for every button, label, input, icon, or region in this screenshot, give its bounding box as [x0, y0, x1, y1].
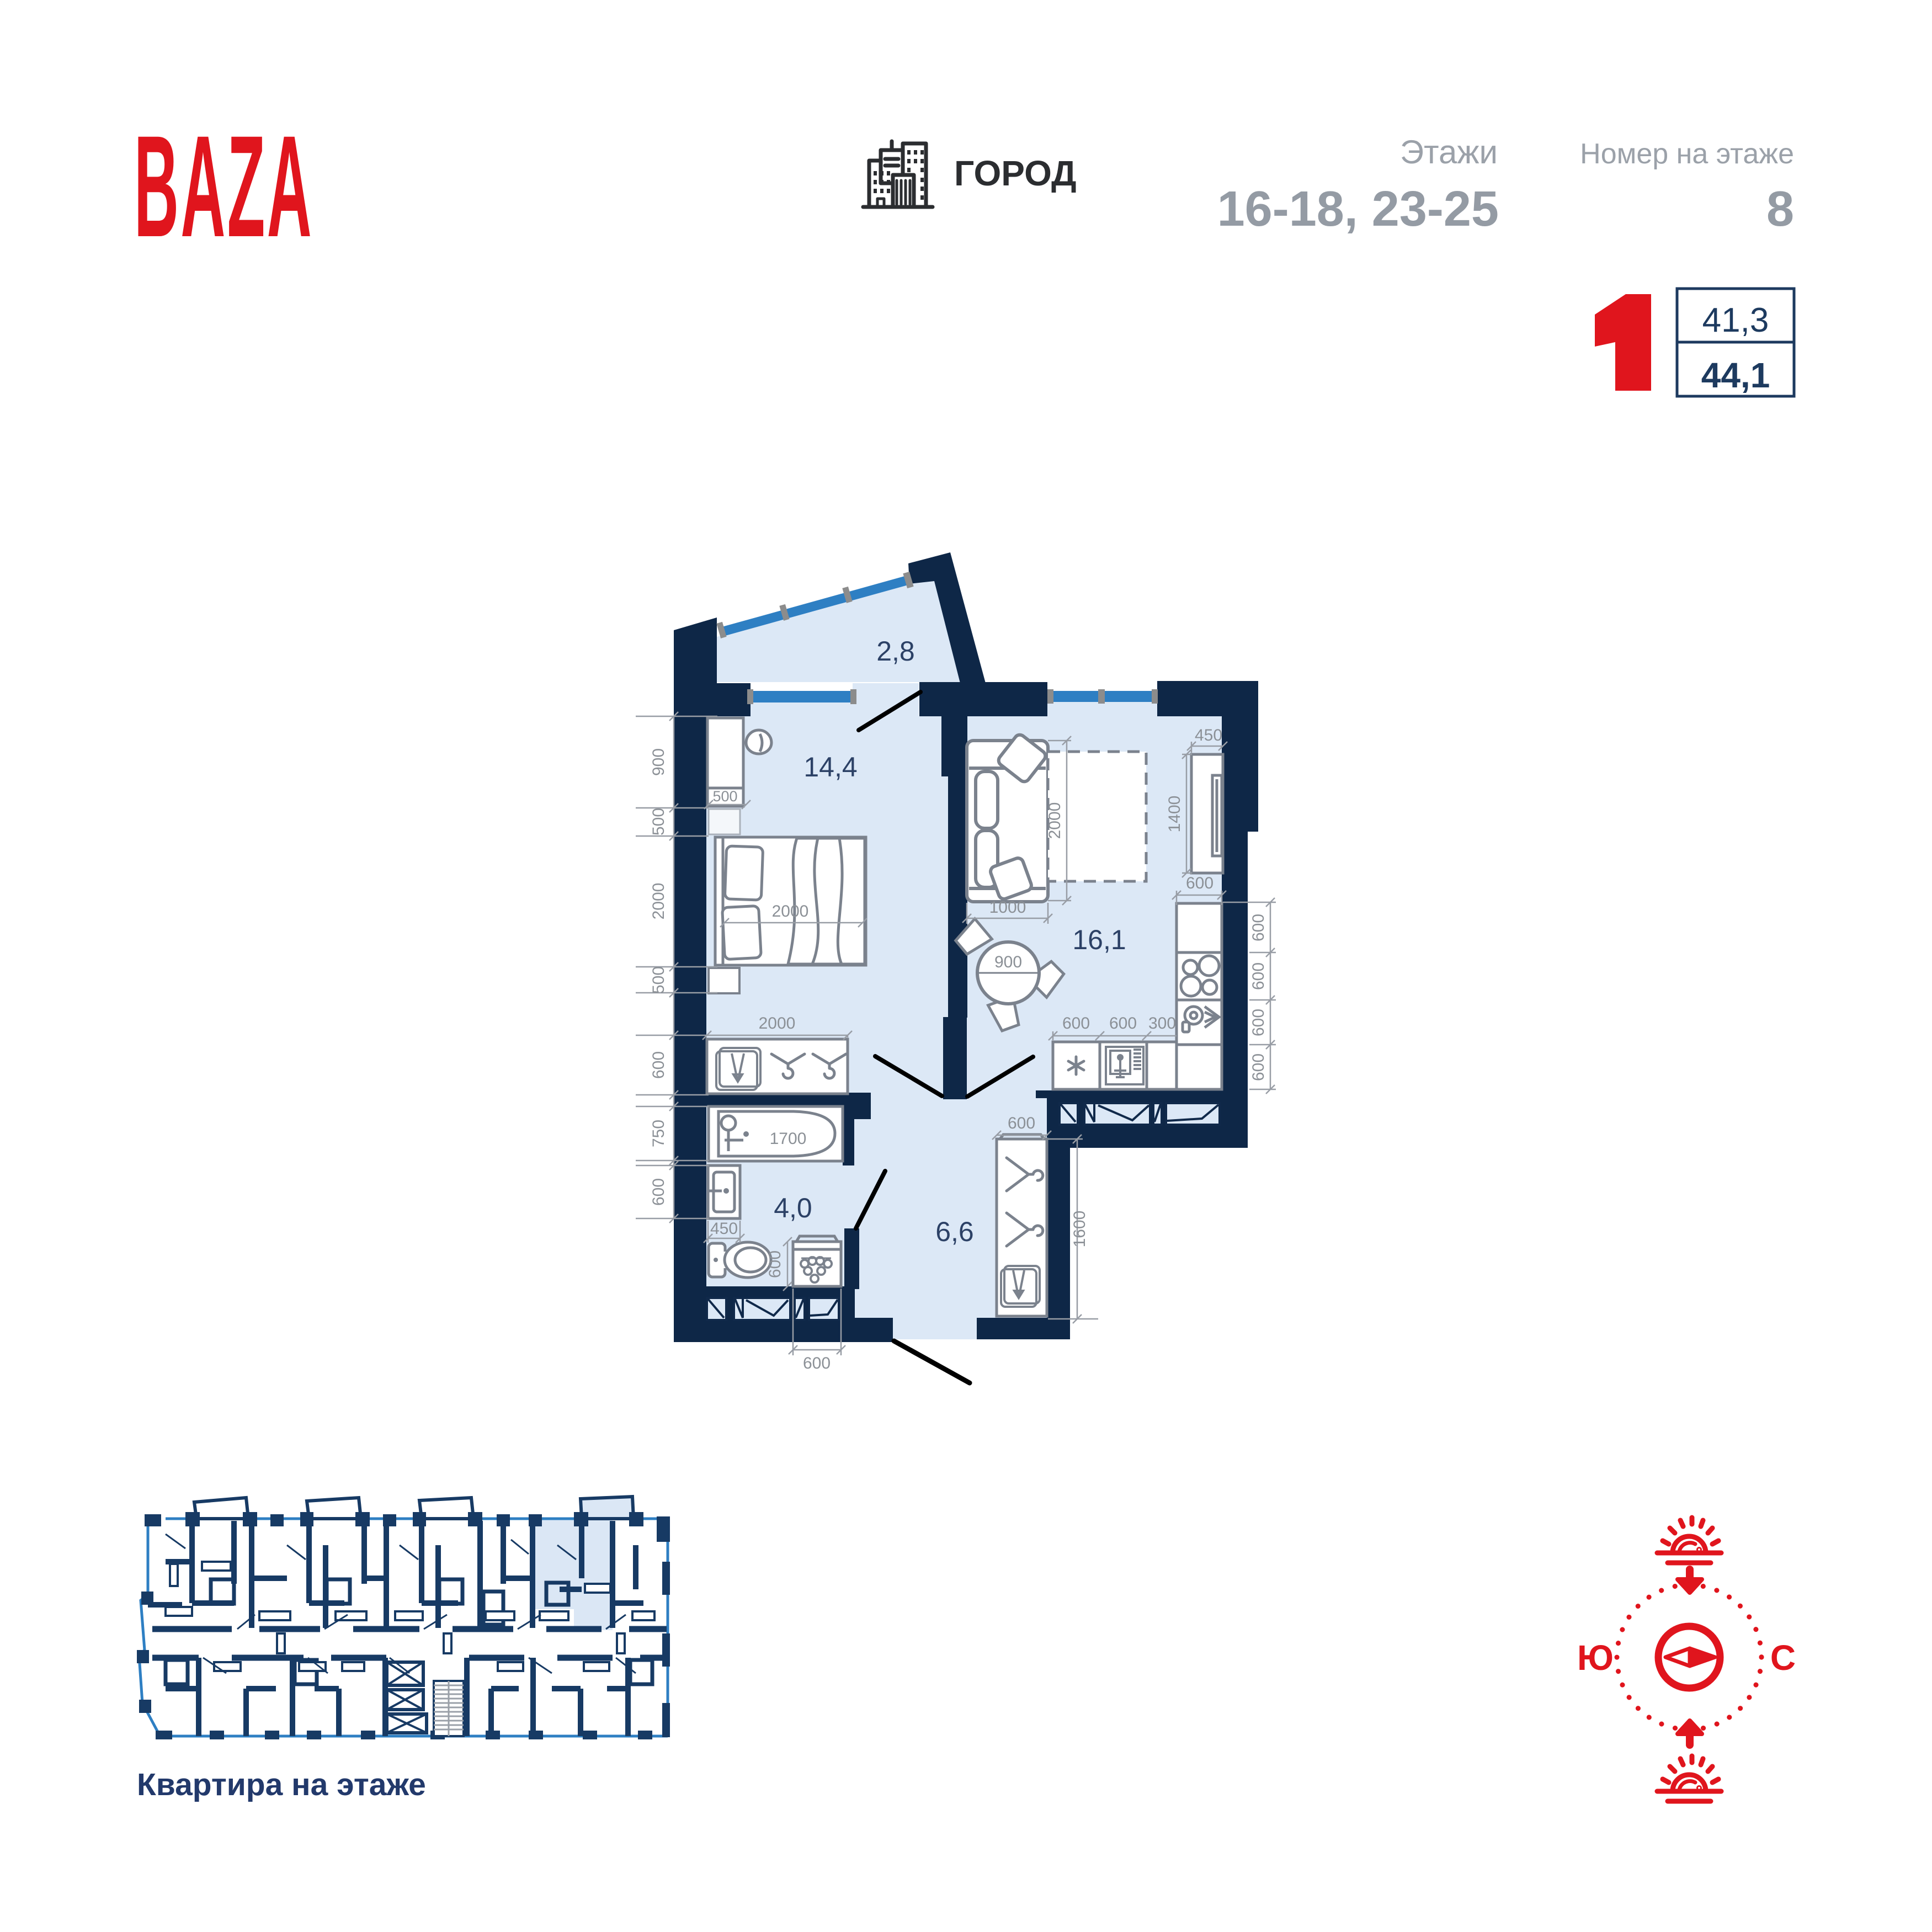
svg-text:16,1: 16,1 [1072, 924, 1126, 955]
svg-text:BAZA: BAZA [134, 105, 313, 267]
svg-text:1700: 1700 [770, 1130, 807, 1148]
svg-text:2000: 2000 [759, 1014, 796, 1032]
svg-text:600: 600 [650, 1051, 668, 1079]
svg-text:600: 600 [1008, 1114, 1035, 1132]
svg-text:2000: 2000 [772, 902, 809, 920]
svg-text:600: 600 [1109, 1014, 1137, 1032]
svg-text:500: 500 [650, 966, 668, 994]
svg-text:600: 600 [766, 1250, 784, 1278]
svg-text:900: 900 [994, 953, 1022, 971]
svg-text:300: 300 [1148, 1014, 1176, 1032]
svg-text:600: 600 [650, 1178, 668, 1206]
svg-text:600: 600 [1249, 914, 1268, 941]
svg-text:600: 600 [1249, 1053, 1268, 1081]
svg-text:14,4: 14,4 [803, 752, 857, 783]
svg-text:ГОРОД: ГОРОД [954, 153, 1077, 193]
svg-text:1600: 1600 [1071, 1211, 1089, 1248]
svg-text:8: 8 [1766, 182, 1794, 237]
svg-text:6,6: 6,6 [935, 1216, 974, 1247]
svg-text:Номер на этаже: Номер на этаже [1580, 138, 1794, 170]
svg-text:450: 450 [710, 1220, 738, 1238]
svg-text:600: 600 [1249, 962, 1268, 990]
svg-text:450: 450 [1195, 726, 1222, 744]
svg-text:Квартира на этаже: Квартира на этаже [137, 1767, 426, 1802]
svg-text:600: 600 [1249, 1009, 1268, 1036]
svg-text:500: 500 [712, 788, 737, 805]
svg-text:600: 600 [1186, 874, 1214, 892]
svg-text:2000: 2000 [1046, 802, 1064, 839]
svg-text:2,8: 2,8 [876, 636, 915, 667]
svg-text:С: С [1770, 1638, 1796, 1678]
svg-text:750: 750 [650, 1120, 668, 1147]
svg-text:1000: 1000 [989, 898, 1026, 917]
svg-text:4,0: 4,0 [774, 1193, 812, 1223]
svg-text:41,3: 41,3 [1702, 301, 1769, 339]
svg-text:16-18, 23-25: 16-18, 23-25 [1217, 182, 1499, 237]
svg-text:600: 600 [1062, 1014, 1090, 1032]
svg-text:1400: 1400 [1165, 796, 1184, 833]
svg-text:Ю: Ю [1577, 1638, 1614, 1678]
svg-text:900: 900 [650, 748, 668, 776]
svg-text:600: 600 [803, 1354, 831, 1372]
svg-text:2000: 2000 [650, 883, 668, 920]
svg-text:Этажи: Этажи [1400, 134, 1498, 171]
svg-text:44,1: 44,1 [1701, 355, 1770, 395]
svg-text:500: 500 [650, 808, 668, 835]
